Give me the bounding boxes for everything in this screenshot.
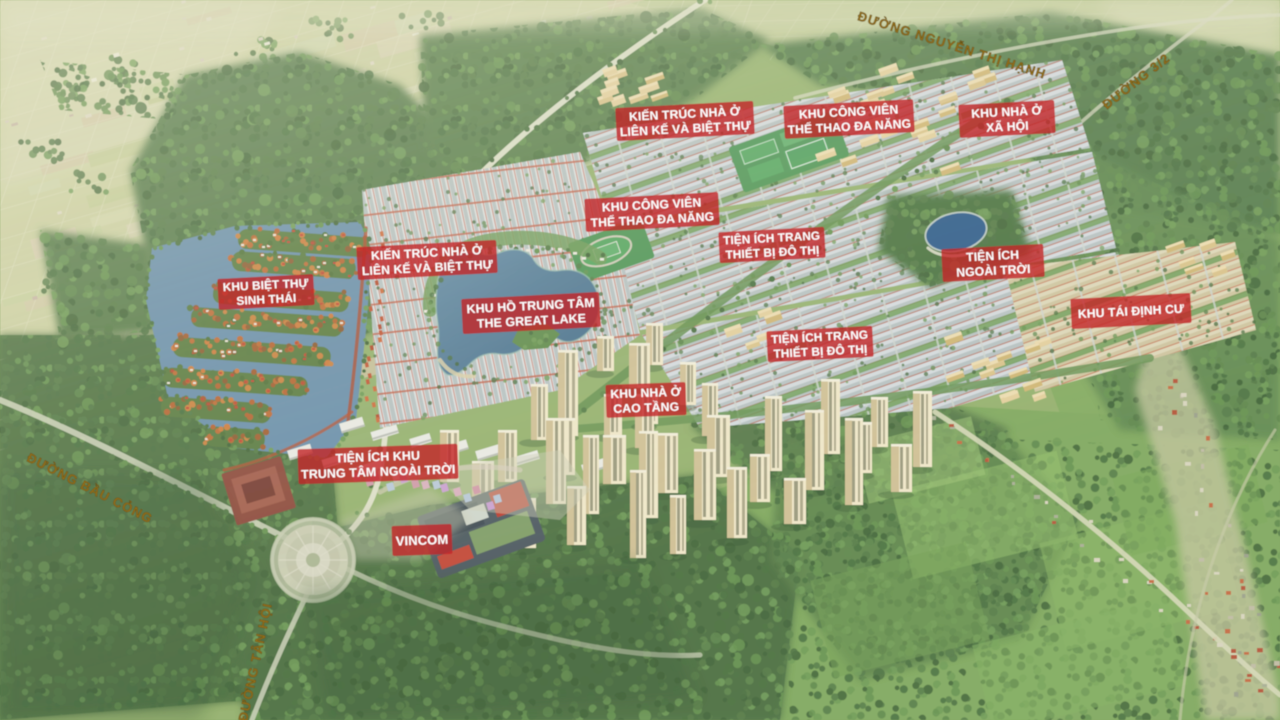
svg-text:TIỆN ÍCH KHU: TIỆN ÍCH KHU	[335, 448, 420, 466]
svg-text:TIỆN ÍCH: TIỆN ÍCH	[966, 247, 1020, 265]
svg-text:CAO TẦNG: CAO TẦNG	[613, 399, 679, 416]
svg-text:VINCOM: VINCOM	[395, 532, 448, 549]
svg-text:KHU NHÀ Ở: KHU NHÀ Ở	[610, 384, 682, 401]
svg-text:XÃ HỘI: XÃ HỘI	[986, 118, 1029, 135]
